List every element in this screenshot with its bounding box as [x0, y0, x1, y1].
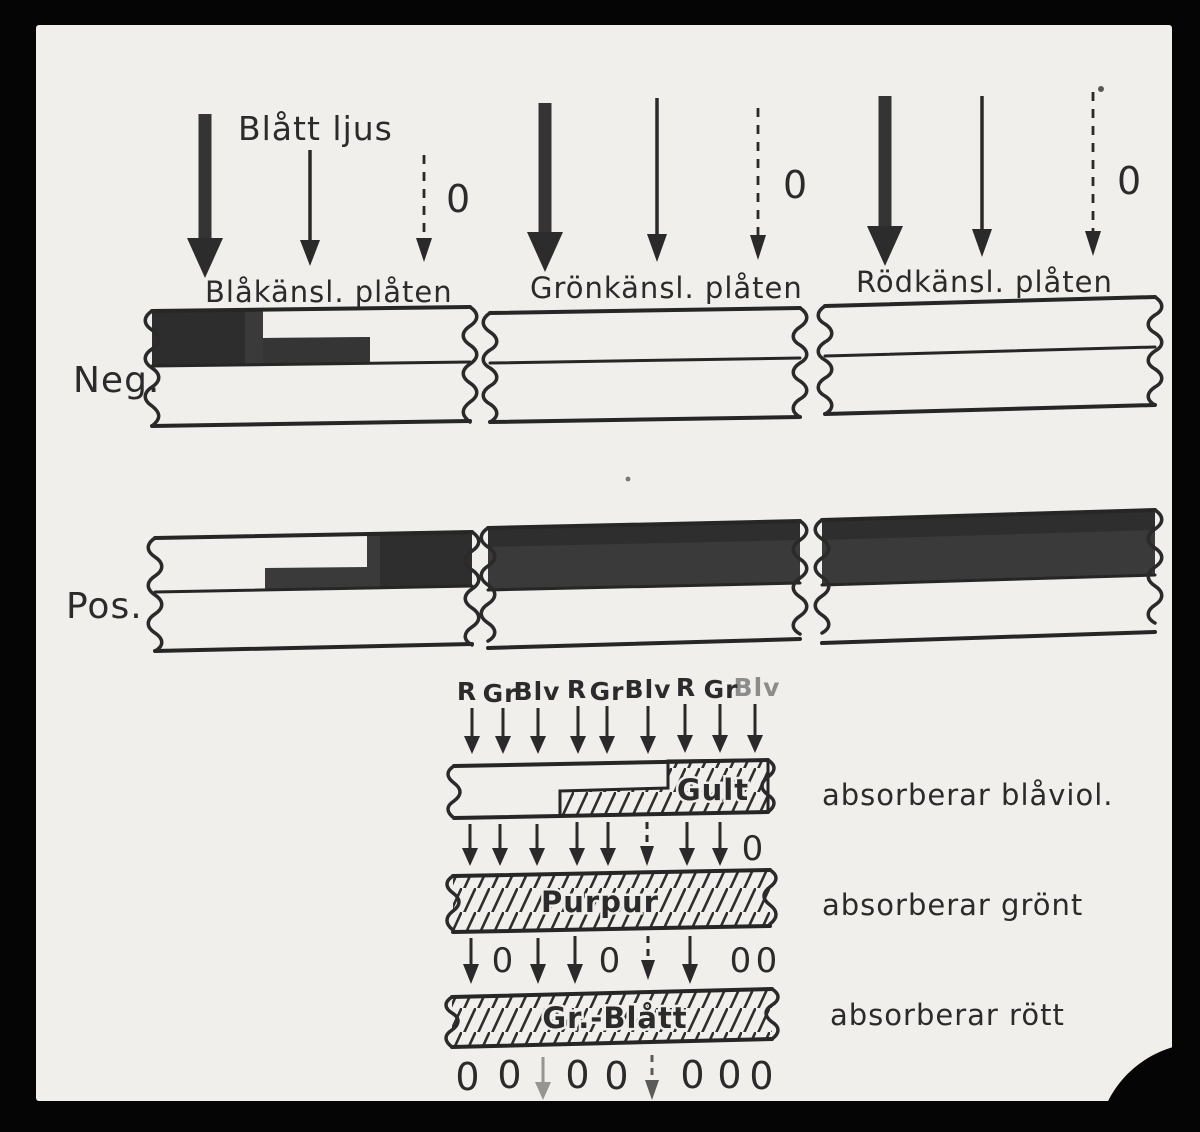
cyan-blue-layer-label: Gr.-Blått — [542, 1001, 687, 1035]
dust-speck — [1098, 86, 1104, 92]
magenta-layer: Purpur — [447, 870, 776, 932]
zero-mark: 0 — [446, 177, 471, 221]
transmission-row-after-cyan: 0 0 0 0 0 0 0 — [455, 1053, 774, 1100]
magenta-layer-label: Purpur — [541, 885, 659, 919]
zero-mark: 0 — [717, 1053, 742, 1097]
zero-mark: 0 — [680, 1053, 705, 1097]
diagram-canvas: Blått ljus 0 0 0 Blåkänsl. plåten Grönkä… — [0, 0, 1200, 1132]
zero-mark: 0 — [492, 941, 515, 981]
yellow-layer-label: Gult — [677, 773, 749, 807]
zero-mark: 0 — [730, 941, 753, 981]
exposed-step — [263, 337, 370, 366]
zero-mark: 0 — [455, 1055, 480, 1099]
zero-mark: 0 — [742, 829, 765, 869]
ray-label: Blv — [734, 673, 781, 702]
cyan-blue-layer: Gr.-Blått — [446, 989, 778, 1047]
plate-label-green: Grönkänsl. plåten — [530, 271, 803, 305]
ray-label: R — [567, 675, 587, 704]
blue-light-label: Blått ljus — [238, 109, 393, 148]
zero-mark: 0 — [783, 163, 808, 207]
cyan-blue-caption: absorberar rött — [830, 998, 1065, 1032]
ray-label: Blv — [625, 675, 672, 704]
zero-mark: 0 — [497, 1053, 522, 1097]
transmission-row-after-magenta: 0 0 0 0 — [463, 936, 778, 984]
zero-mark: 0 — [756, 941, 779, 981]
zero-mark: 0 — [749, 1054, 774, 1098]
plate-label-blue: Blåkänsl. plåten — [205, 275, 453, 309]
yellow-caption: absorberar blåviol. — [822, 778, 1114, 812]
zero-mark: 0 — [1117, 159, 1142, 203]
ray-label: Blv — [514, 677, 561, 706]
lantern-slide: Blått ljus 0 0 0 Blåkänsl. plåten Grönkä… — [0, 0, 1200, 1132]
ray-labels: R Gr Blv R Gr Blv R Gr Blv — [457, 673, 781, 708]
plate-label-red: Rödkänsl. plåten — [856, 265, 1113, 299]
zero-mark: 0 — [565, 1053, 590, 1097]
ray-label: Gr — [483, 679, 518, 708]
ray-label: R — [676, 673, 696, 702]
dust-speck — [626, 477, 631, 482]
ray-label: R — [457, 677, 477, 706]
zero-mark: 0 — [599, 941, 622, 981]
exposed-area-dark — [152, 310, 245, 366]
zero-mark: 0 — [604, 1054, 629, 1098]
magenta-caption: absorberar grönt — [822, 888, 1083, 922]
exposed-area-dark — [380, 532, 472, 587]
ray-label: Gr — [590, 677, 625, 706]
positive-row-label: Pos. — [66, 586, 143, 627]
